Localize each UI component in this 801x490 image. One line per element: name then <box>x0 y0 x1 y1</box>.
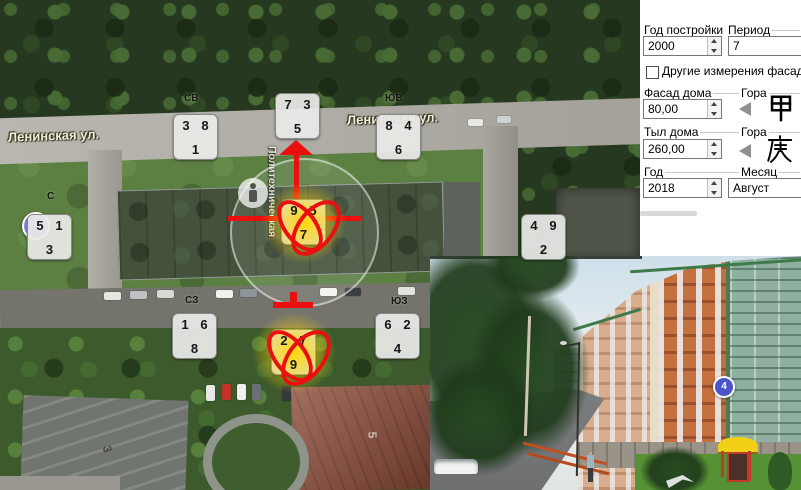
car <box>130 291 147 299</box>
car <box>240 289 257 297</box>
year-built-value: 2000 <box>648 39 675 53</box>
photo-marker-4[interactable]: 4 <box>713 376 735 398</box>
star-bottom: 5 <box>276 121 319 136</box>
period-value: 7 <box>733 39 740 53</box>
star-top-right: 2 <box>399 317 415 332</box>
flying-star-grid: 735 <box>275 93 320 139</box>
house-number-5: 5 <box>365 431 379 438</box>
map-building-small <box>444 182 480 258</box>
car <box>206 385 215 401</box>
flying-star-grid: 846 <box>376 114 421 160</box>
map-building-right <box>556 188 640 260</box>
facade-arrow-icon <box>279 140 313 155</box>
compass-sector-label: С <box>47 191 54 202</box>
star-top-left: 4 <box>526 218 542 233</box>
car <box>468 119 483 126</box>
star-top-right: 8 <box>197 118 213 133</box>
car <box>252 384 261 400</box>
rear-prev-mountain-button[interactable] <box>739 144 751 158</box>
star-top-left: 3 <box>178 118 194 133</box>
star-bottom: 8 <box>173 341 216 356</box>
car <box>157 290 174 298</box>
flying-star-grid: 624 <box>375 313 420 359</box>
pegman-body <box>249 190 257 202</box>
star-top-left: 5 <box>32 218 48 233</box>
photo-overhanging-branch <box>485 256 580 301</box>
car <box>104 292 121 300</box>
facade-prev-mountain-button[interactable] <box>739 102 751 116</box>
settings-panel: Год постройки Период 2000 7 Другие измер… <box>640 0 801 256</box>
map-road-right <box>483 126 518 268</box>
scrollbar-fragment[interactable] <box>640 211 697 216</box>
rear-marker-bar <box>273 302 313 308</box>
flying-star-grid: 279 <box>271 329 316 375</box>
app-window: Ленинская ул. Ленинская ул. Политехничес… <box>0 0 801 490</box>
spin-up-button[interactable] <box>708 179 721 188</box>
map-building-5 <box>291 385 433 490</box>
other-measurements-label: Другие измерения фасада <box>660 65 801 77</box>
photo-awning-post <box>721 451 724 477</box>
photo-trees <box>430 356 540 476</box>
rear-mountain-label: Гора <box>739 126 769 138</box>
rear-label: Тыл дома <box>642 126 700 138</box>
spin-up-button[interactable] <box>708 140 721 149</box>
period-field[interactable]: 7 <box>728 36 801 56</box>
month-field[interactable]: Август <box>728 178 801 198</box>
facade-label: Фасад дома <box>642 87 713 99</box>
star-bottom: 6 <box>377 142 420 157</box>
star-bottom: 3 <box>28 242 71 257</box>
compass-sector-label: СВ <box>184 93 198 104</box>
map-road-bottom <box>0 476 120 490</box>
compass-sector-label: СЗ <box>185 295 198 306</box>
street-view-photo[interactable]: 4 <box>430 256 801 490</box>
photo-lamp-head <box>560 341 567 345</box>
spin-down-button[interactable] <box>708 46 721 55</box>
flying-star-grid: 957 <box>281 199 326 245</box>
star-top-right: 3 <box>299 97 315 112</box>
rear-spinbox[interactable]: 260,00 <box>643 139 722 159</box>
month-label: Месяц <box>739 166 779 178</box>
year-spinbox[interactable]: 2018 <box>643 178 722 198</box>
compass-sector-label: ЮВ <box>385 93 403 104</box>
car <box>222 384 231 400</box>
spinner <box>707 140 721 158</box>
photo-entrance-door <box>727 452 749 482</box>
star-top-left: 8 <box>381 118 397 133</box>
compass-sector-label: ЮЗ <box>391 296 408 307</box>
star-top-left: 1 <box>177 317 193 332</box>
star-top-right: 9 <box>545 218 561 233</box>
year-built-label: Год постройки <box>642 24 725 36</box>
photo-conifer <box>768 452 792 490</box>
hanzi-jia-icon <box>767 93 795 123</box>
rear-value: 260,00 <box>648 142 685 156</box>
spin-up-button[interactable] <box>708 100 721 109</box>
facade-mountain-label: Гора <box>739 87 769 99</box>
year-label: Год <box>642 166 665 178</box>
car <box>398 287 415 295</box>
star-top-right: 1 <box>51 218 67 233</box>
car <box>216 290 233 298</box>
other-measurements-checkbox[interactable] <box>646 66 659 79</box>
spin-up-button[interactable] <box>708 37 721 46</box>
period-label: Период <box>726 24 772 36</box>
year-built-spinbox[interactable]: 2000 <box>643 36 722 56</box>
star-top-right: 4 <box>400 118 416 133</box>
photo-person-legs <box>588 468 593 482</box>
star-bottom: 2 <box>522 242 565 257</box>
flying-star-grid: 168 <box>172 313 217 359</box>
spin-down-button[interactable] <box>708 149 721 158</box>
flying-star-grid: 513 <box>27 214 72 260</box>
flying-star-grid: 492 <box>521 214 566 260</box>
street-label-leninskaya-left: Ленинская ул. <box>8 126 100 144</box>
star-top-left: 6 <box>380 317 396 332</box>
spin-down-button[interactable] <box>708 109 721 118</box>
spinner <box>707 100 721 118</box>
year-value: 2018 <box>648 181 675 195</box>
pegman-head <box>250 183 256 189</box>
star-top-right: 6 <box>196 317 212 332</box>
spin-down-button[interactable] <box>708 188 721 197</box>
photo-parked-car <box>434 459 478 474</box>
car <box>237 384 246 400</box>
pegman-icon[interactable] <box>238 178 268 208</box>
star-bottom: 1 <box>174 142 217 157</box>
spinner <box>707 179 721 197</box>
star-top-left: 7 <box>280 97 296 112</box>
flying-star-grid: 381 <box>173 114 218 160</box>
spinner <box>707 37 721 55</box>
facade-value: 80,00 <box>648 102 678 116</box>
car <box>497 116 511 123</box>
star-bottom: 4 <box>376 341 419 356</box>
photo-person-body <box>587 455 594 468</box>
month-value: Август <box>733 181 769 195</box>
facade-spinbox[interactable]: 80,00 <box>643 99 722 119</box>
hanzi-geng-icon <box>766 134 794 164</box>
